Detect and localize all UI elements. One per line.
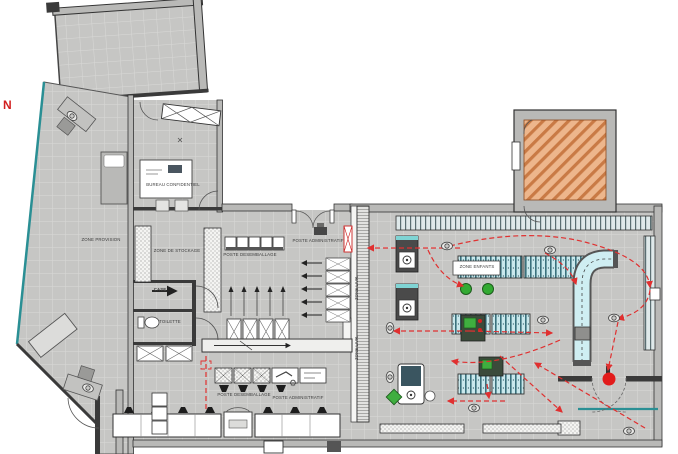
low-bench: [483, 424, 561, 433]
door-leaf: [330, 210, 334, 223]
wall-hall-bottom: [133, 440, 662, 447]
person-icon: [386, 372, 394, 383]
north-label: N: [3, 102, 12, 109]
wall-shelving-top: [396, 216, 652, 230]
green-machine: [479, 357, 503, 376]
label-toilette: TOILETTE: [159, 320, 181, 324]
counter-center-module: [224, 408, 252, 437]
wall-small-rooms-right: [192, 282, 196, 346]
machine-row-top: [225, 237, 284, 250]
person-icon: [609, 314, 620, 322]
green-seat: [483, 284, 494, 295]
fire-equipment-marker: [344, 226, 352, 252]
ramp-room: [512, 110, 616, 212]
wall-corner: [46, 2, 60, 13]
label-zone-enfants: ZONE ENFANTS: [460, 265, 495, 269]
ramp-hatched-floor: [524, 120, 606, 200]
wall-speaker: [650, 288, 660, 300]
wall-toilette-bottom: [133, 342, 196, 345]
kiosk-cabinet: [396, 284, 418, 320]
storage-shelf: [135, 226, 151, 282]
wall-backroom-top-left: [558, 376, 592, 382]
chair: [175, 200, 188, 211]
person-icon: [538, 316, 549, 324]
person-icon: [442, 242, 453, 250]
storage-shelf: [204, 228, 221, 312]
label-zone-livraison-upper: ZONE LIVR.: [355, 275, 359, 300]
door-leaf: [292, 210, 296, 223]
wall-central-hatched: [357, 206, 369, 422]
label-case: CASE: [154, 288, 167, 292]
person-icon: [469, 404, 480, 412]
person-icon: [545, 246, 556, 254]
chair: [156, 200, 169, 211]
entry-exit-marker: [603, 373, 616, 386]
label-bureau-confidentiel: BUREAU CONFIDENTIEL: [146, 183, 199, 187]
wall-vestibule-top-left: [222, 204, 292, 211]
green-machine: [461, 315, 485, 341]
wall-vertical-left: [128, 95, 134, 454]
person-icon: [624, 427, 635, 435]
label-poste-desemballage-bottom: POSTE DESEMBALLAGE: [217, 393, 270, 397]
sorting-counter: [202, 339, 352, 352]
floor-plan-drawing: [0, 0, 678, 454]
label-poste-administratif-bottom: POSTE ADMINISTRATIF: [273, 396, 324, 400]
storage-bed: [101, 152, 127, 204]
floor-plan: N ZONE PROVISION BUREAU CONFIDENTIEL ZON…: [0, 0, 678, 454]
wall-bottom-left-2: [95, 396, 100, 454]
bottom-kiosk: [264, 441, 283, 453]
queue-gate: [575, 327, 590, 340]
label-zone-livraison-lower: ZONE LIVR.: [355, 335, 359, 360]
kiosk-cabinet: [396, 236, 418, 272]
stool: [425, 391, 435, 401]
terminal-machine: [398, 364, 424, 404]
label-zone-de-stockage: ZONE DE STOCKAGE: [154, 249, 201, 253]
label-zone-provision: ZONE PROVISION: [81, 238, 120, 242]
person-icon: [386, 323, 394, 334]
side-tables: [326, 258, 350, 322]
label-poste-administratif-top: POSTE ADMINISTRATIF: [293, 239, 344, 243]
gear-icon: ⚙: [289, 381, 297, 387]
toilet-icon: [138, 317, 159, 328]
wall-vestibule-top-right: [334, 204, 352, 211]
door-leaf: [512, 142, 520, 170]
bottom-equipment: [327, 441, 341, 452]
wall-backroom-top-right: [626, 376, 662, 382]
wall-case-bottom: [133, 309, 196, 312]
side-boxes-column: [152, 393, 167, 434]
low-bench: [380, 424, 464, 433]
left-wing-floor: [17, 82, 131, 454]
label-poste-desemballage-top: POSTE DESEMBALLAGE: [223, 253, 276, 257]
